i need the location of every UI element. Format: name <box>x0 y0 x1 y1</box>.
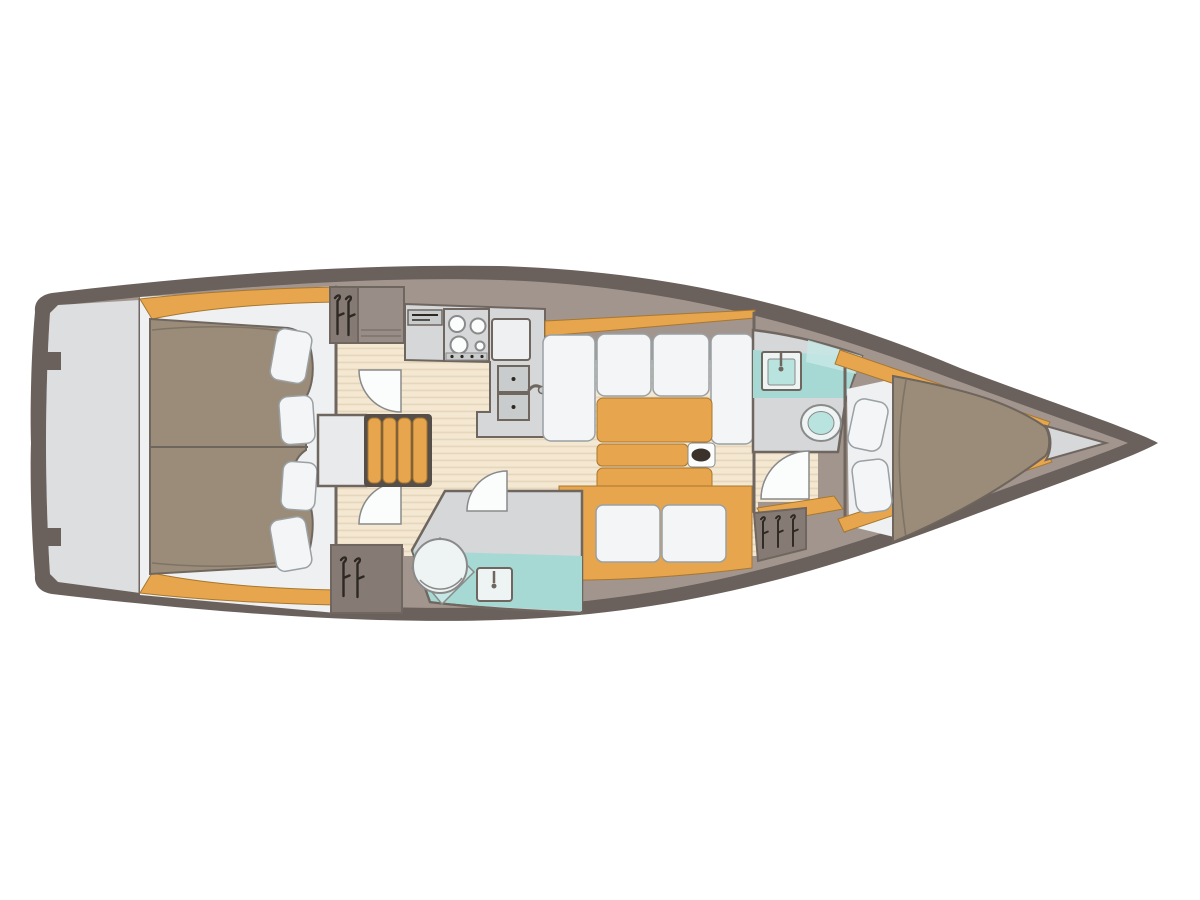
panel <box>408 310 442 325</box>
toilet-lid <box>808 412 834 435</box>
wardrobe-starboard <box>330 287 404 343</box>
drain <box>512 377 516 381</box>
round-basin <box>413 539 467 593</box>
forward-head-sink <box>762 352 801 390</box>
stove <box>444 309 489 361</box>
faucet-drop <box>779 367 784 372</box>
faucet-drop <box>492 584 497 589</box>
yacht-floor-plan <box>0 0 1200 900</box>
swim-platform-deck <box>46 300 140 593</box>
table-leaf <box>597 444 688 466</box>
toilet <box>801 405 841 441</box>
engine-box <box>318 415 366 486</box>
aft-cabin <box>140 286 336 613</box>
burner <box>451 337 468 354</box>
knob <box>450 355 453 358</box>
pillow <box>278 395 315 445</box>
wardrobe-port <box>331 545 402 613</box>
settee-cushion <box>543 335 595 441</box>
step-tread <box>368 418 381 483</box>
table-leaf <box>597 398 712 442</box>
shelf-cabinet <box>358 287 404 343</box>
aft-head-sink <box>477 568 512 601</box>
knob <box>470 355 473 358</box>
burner <box>449 316 465 332</box>
wardrobe-box <box>331 545 402 613</box>
yacht-floor-plan-canvas <box>0 0 1200 900</box>
settee-cushion <box>653 334 709 396</box>
transom-notch <box>44 352 61 370</box>
step-tread <box>383 418 396 483</box>
step-tread <box>398 418 411 483</box>
burner <box>476 342 485 351</box>
bench-cushion <box>596 505 660 562</box>
knob <box>460 355 463 358</box>
settee-cushion <box>711 334 753 444</box>
drain <box>512 405 516 409</box>
steps-treads <box>368 418 427 483</box>
knob <box>480 355 483 358</box>
companionway-steps-unit <box>318 414 432 487</box>
transom-notch <box>44 528 61 546</box>
galley-control-panel <box>408 310 442 325</box>
settee-cushion <box>597 334 651 396</box>
salon-bench <box>559 486 752 580</box>
swim-platform <box>44 299 140 594</box>
pillow <box>280 461 317 511</box>
burner <box>471 319 486 334</box>
step-tread <box>413 418 427 483</box>
pillow <box>851 458 893 514</box>
galley-worktop <box>492 319 530 360</box>
bench-cushion <box>662 505 726 562</box>
mast-post <box>692 449 711 462</box>
